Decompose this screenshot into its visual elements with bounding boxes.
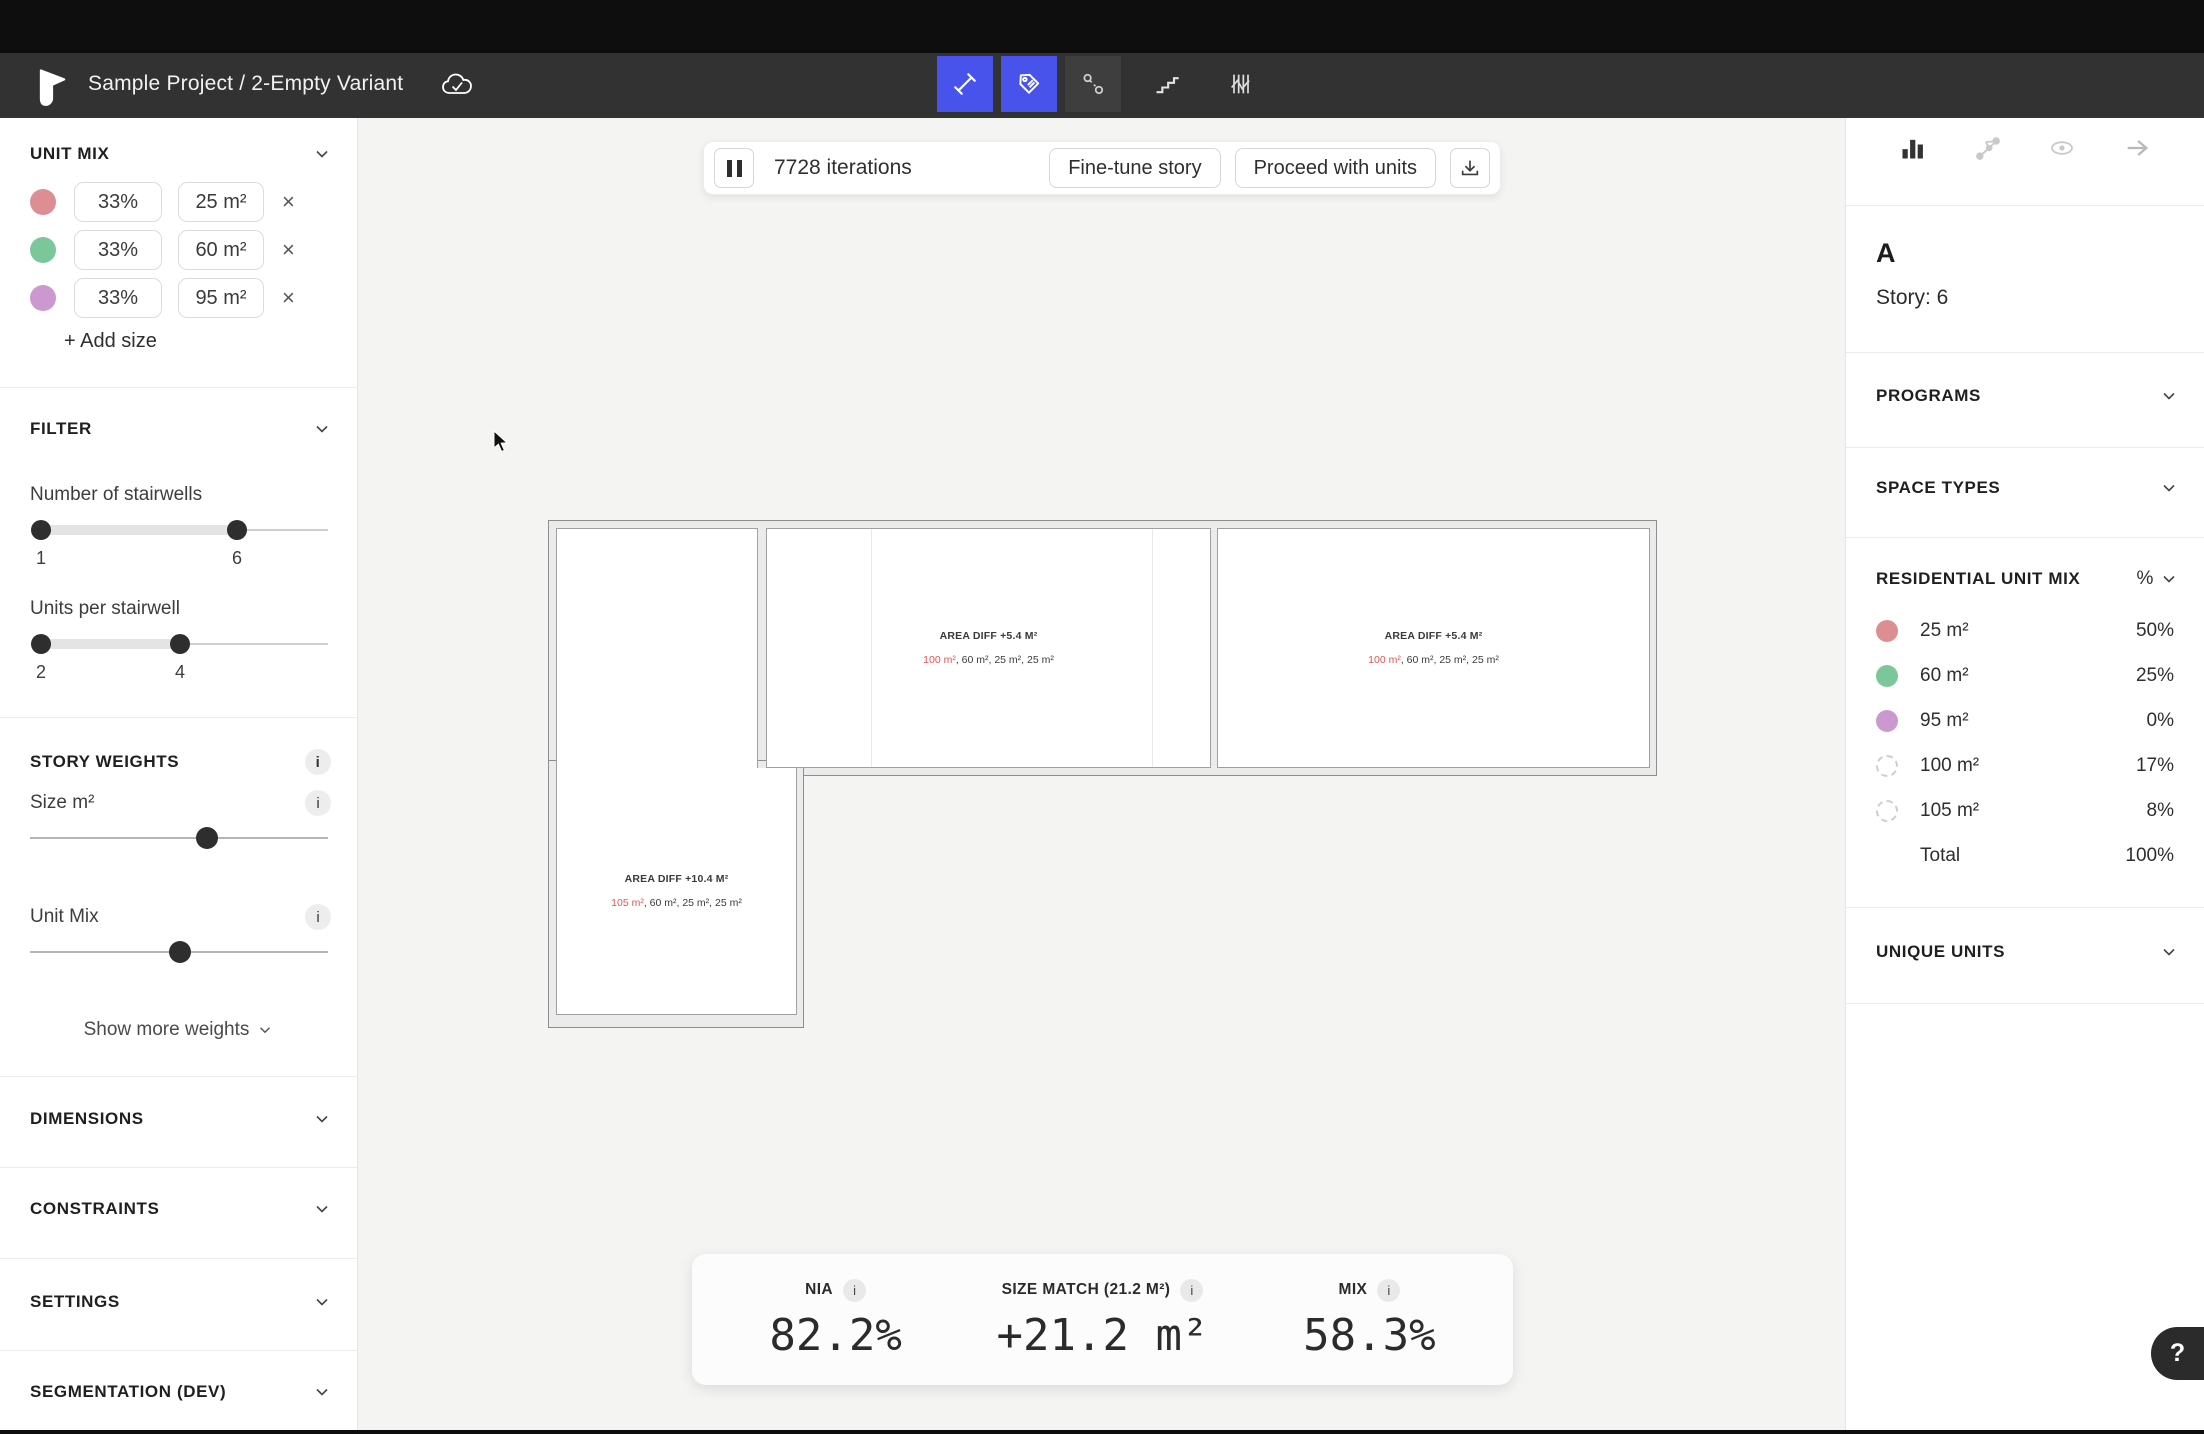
slider-handle-min[interactable] bbox=[31, 634, 51, 654]
divider bbox=[1846, 907, 2204, 908]
mix-pct-value: 25% bbox=[2136, 665, 2174, 687]
download-button[interactable] bbox=[1450, 148, 1490, 188]
divider bbox=[1846, 1003, 2204, 1004]
mouse-cursor bbox=[492, 430, 514, 454]
variant-name: A bbox=[1876, 238, 1896, 269]
slider-handle-min[interactable] bbox=[31, 520, 51, 540]
chevron-down-icon bbox=[2160, 570, 2178, 588]
constraints-header[interactable]: CONSTRAINTS bbox=[30, 1199, 331, 1219]
mix-row: 25 m² 50% bbox=[1876, 620, 2174, 642]
cloud-sync-icon[interactable] bbox=[440, 70, 478, 100]
divider bbox=[0, 1167, 357, 1168]
drawing-toolbar bbox=[937, 56, 1269, 112]
mix-total-row: Total 100% bbox=[1876, 845, 2174, 867]
unit-mix-row: 33% 95 m² × bbox=[30, 278, 295, 318]
area-diff-label: AREA DIFF +5.4 M² bbox=[940, 630, 1038, 642]
spacer bbox=[1876, 845, 1898, 867]
fine-tune-story-button[interactable]: Fine-tune story bbox=[1049, 148, 1220, 188]
left-panel: UNIT MIX 33% 25 m² × 33% 60 m² × 33% 95 … bbox=[0, 118, 358, 1430]
story-weights-header: STORY WEIGHTS i bbox=[30, 749, 331, 775]
mix-size-label: 100 m² bbox=[1920, 755, 1979, 777]
eye-icon[interactable] bbox=[2048, 134, 2076, 162]
slider-track[interactable] bbox=[30, 837, 328, 839]
mix-size-label: 25 m² bbox=[1920, 620, 1969, 642]
bar-chart-icon[interactable] bbox=[1899, 134, 1927, 162]
unit-size-input[interactable]: 95 m² bbox=[178, 278, 264, 318]
size-match-value: +21.2 m² bbox=[997, 1310, 1209, 1361]
slider-min-value: 1 bbox=[36, 548, 46, 569]
chevron-down-icon bbox=[313, 1383, 331, 1401]
tag-tool-button[interactable] bbox=[1001, 56, 1057, 112]
chevron-down-icon bbox=[313, 1110, 331, 1128]
mix-label: MIX bbox=[1339, 1281, 1368, 1299]
app-window: Sample Project / 2-Empty Variant bbox=[0, 0, 2204, 1434]
divider bbox=[0, 1350, 357, 1351]
slider-handle-max[interactable] bbox=[227, 520, 247, 540]
unit-division-line bbox=[871, 529, 872, 767]
chevron-down-icon bbox=[2160, 943, 2178, 961]
divider bbox=[0, 717, 357, 718]
unit-sizes: , 60 m², 25 m², 25 m² bbox=[644, 897, 742, 909]
divider bbox=[0, 1076, 357, 1077]
unit-pct-input[interactable]: 33% bbox=[74, 230, 162, 270]
floorplan-stairwell-block[interactable]: AREA DIFF +5.4 M² 100 m², 60 m², 25 m², … bbox=[766, 528, 1211, 768]
divider bbox=[1846, 537, 2204, 538]
help-button[interactable]: ? bbox=[2151, 1327, 2204, 1380]
info-icon[interactable]: i bbox=[305, 904, 331, 930]
variant-story: Story: 6 bbox=[1876, 286, 1948, 310]
programs-title: PROGRAMS bbox=[1876, 386, 1981, 406]
mix-row: 100 m² 17% bbox=[1876, 755, 2174, 777]
slider-track-active[interactable] bbox=[31, 639, 180, 649]
unit-mix-row: 33% 60 m² × bbox=[30, 230, 295, 270]
unit-mix-row: 33% 25 m² × bbox=[30, 182, 295, 222]
divider bbox=[1846, 447, 2204, 448]
show-more-weights-button[interactable]: Show more weights bbox=[0, 1019, 357, 1041]
size-weight-label: Size m² bbox=[30, 792, 94, 814]
mix-pct-value: 50% bbox=[2136, 620, 2174, 642]
area-diff-label: AREA DIFF +5.4 M² bbox=[1385, 630, 1483, 642]
size-match-label: SIZE MATCH (21.2 M²) bbox=[1002, 1281, 1171, 1299]
info-icon[interactable]: i bbox=[305, 790, 331, 816]
dimensions-title: DIMENSIONS bbox=[30, 1109, 144, 1129]
mix-pct-value: 17% bbox=[2136, 755, 2174, 777]
slider-handle-max[interactable] bbox=[170, 634, 190, 654]
space-types-header[interactable]: SPACE TYPES bbox=[1876, 478, 2178, 498]
programs-header[interactable]: PROGRAMS bbox=[1876, 386, 2178, 406]
dimensions-header[interactable]: DIMENSIONS bbox=[30, 1109, 331, 1129]
mix-pct-value: 8% bbox=[2147, 800, 2174, 822]
info-icon[interactable]: i bbox=[843, 1279, 866, 1302]
chevron-down-icon bbox=[313, 1293, 331, 1311]
unit-sizes: , 60 m², 25 m², 25 m² bbox=[1401, 654, 1499, 666]
unit-over-size: 105 m² bbox=[611, 897, 644, 909]
unit-over-size: 100 m² bbox=[923, 654, 956, 666]
unit-pct-input[interactable]: 33% bbox=[74, 278, 162, 318]
nia-value: 82.2% bbox=[769, 1310, 901, 1361]
unit-color-dot-dashed bbox=[1876, 800, 1898, 822]
slider-handle[interactable] bbox=[196, 827, 218, 849]
show-more-weights-label: Show more weights bbox=[84, 1019, 250, 1041]
hatch-tool-button[interactable] bbox=[1213, 56, 1269, 112]
divider bbox=[0, 1258, 357, 1259]
total-label: Total bbox=[1920, 845, 1960, 867]
unit-mix-weight-slider bbox=[30, 941, 328, 961]
mix-metric: MIX i 58.3% bbox=[1303, 1279, 1435, 1361]
finch-logo-icon[interactable] bbox=[32, 65, 72, 107]
add-size-button[interactable]: + Add size bbox=[64, 330, 157, 353]
area-diff-label: AREA DIFF +10.4 M² bbox=[625, 873, 729, 885]
chevron-down-icon bbox=[257, 1022, 273, 1038]
remove-unit-button[interactable]: × bbox=[282, 191, 295, 213]
iteration-toolbar: 7728 iterations Fine-tune story Proceed … bbox=[703, 141, 1501, 195]
stairwells-slider-label: Number of stairwells bbox=[30, 484, 202, 506]
mix-size-label: 60 m² bbox=[1920, 665, 1969, 687]
unit-list-label: 100 m², 60 m², 25 m², 25 m² bbox=[923, 654, 1054, 666]
filter-header[interactable]: FILTER bbox=[30, 419, 331, 439]
slider-track-active[interactable] bbox=[31, 525, 237, 535]
unit-mix-weight-label: Unit Mix bbox=[30, 906, 99, 928]
units-per-stairwell-slider-label: Units per stairwell bbox=[30, 598, 180, 620]
unit-sizes: , 60 m², 25 m², 25 m² bbox=[956, 654, 1054, 666]
slider-max-value: 6 bbox=[232, 548, 242, 569]
info-icon[interactable]: i bbox=[1377, 1279, 1400, 1302]
iteration-count: 7728 iterations bbox=[774, 156, 912, 180]
mix-row: 95 m² 0% bbox=[1876, 710, 2174, 732]
mix-pct-value: 0% bbox=[2147, 710, 2174, 732]
mix-row: 105 m² 8% bbox=[1876, 800, 2174, 822]
unit-list-label: 100 m², 60 m², 25 m², 25 m² bbox=[1368, 654, 1499, 666]
stairs-tool-button[interactable] bbox=[1139, 56, 1195, 112]
download-icon bbox=[1459, 157, 1481, 179]
segmentation-header[interactable]: SEGMENTATION (DEV) bbox=[30, 1382, 331, 1402]
chevron-down-icon bbox=[313, 1200, 331, 1218]
size-match-metric: SIZE MATCH (21.2 M²) i +21.2 m² bbox=[997, 1279, 1209, 1361]
unit-color-dot bbox=[30, 285, 56, 311]
mix-row: 60 m² 25% bbox=[1876, 665, 2174, 687]
percent-label: % bbox=[2137, 568, 2155, 590]
unit-division-line bbox=[1152, 529, 1153, 767]
stairwells-range-slider bbox=[30, 520, 328, 540]
proceed-with-units-button[interactable]: Proceed with units bbox=[1235, 148, 1436, 188]
chevron-down-icon[interactable] bbox=[313, 145, 331, 163]
metrics-bar: NIA i 82.2% SIZE MATCH (21.2 M²) i +21.2… bbox=[692, 1254, 1513, 1385]
unit-color-dot bbox=[1876, 620, 1898, 642]
space-types-title: SPACE TYPES bbox=[1876, 478, 2000, 498]
info-icon[interactable]: i bbox=[1180, 1279, 1203, 1302]
unit-pct-input[interactable]: 33% bbox=[74, 182, 162, 222]
unit-mix-weight-label-row: Unit Mix i bbox=[30, 904, 331, 930]
divider bbox=[0, 387, 357, 388]
chevron-down-icon bbox=[2160, 387, 2178, 405]
chevron-down-icon bbox=[2160, 479, 2178, 497]
unit-size-input[interactable]: 60 m² bbox=[178, 230, 264, 270]
divider bbox=[1846, 205, 2204, 206]
measure-tool-button[interactable] bbox=[937, 56, 993, 112]
mix-size-label: 95 m² bbox=[1920, 710, 1969, 732]
top-bar: Sample Project / 2-Empty Variant bbox=[0, 53, 2204, 118]
story-weights-title: STORY WEIGHTS bbox=[30, 752, 179, 772]
unique-units-header[interactable]: UNIQUE UNITS bbox=[1876, 942, 2178, 962]
unit-over-size: 100 m² bbox=[1368, 654, 1401, 666]
chevron-down-icon[interactable] bbox=[313, 420, 331, 438]
mix-value: 58.3% bbox=[1303, 1310, 1435, 1361]
unit-color-dot bbox=[30, 237, 56, 263]
unique-units-title: UNIQUE UNITS bbox=[1876, 942, 2005, 962]
right-panel: A Story: 6 PROGRAMS SPACE TYPES RESIDENT… bbox=[1845, 118, 2204, 1430]
unit-color-dot bbox=[1876, 665, 1898, 687]
total-value: 100% bbox=[2125, 845, 2174, 867]
arrow-right-icon[interactable] bbox=[2123, 134, 2151, 162]
size-weight-slider bbox=[30, 827, 328, 847]
floorplan-stairwell-block[interactable]: AREA DIFF +10.4 M² 105 m², 60 m², 25 m²,… bbox=[556, 768, 797, 1015]
pause-button[interactable] bbox=[714, 148, 754, 188]
residential-unit-mix-header[interactable]: RESIDENTIAL UNIT MIX % bbox=[1876, 568, 2178, 590]
settings-title: SETTINGS bbox=[30, 1292, 120, 1312]
unit-color-dot bbox=[30, 189, 56, 215]
analysis-icon-row bbox=[1846, 134, 2204, 162]
unit-list-label: 105 m², 60 m², 25 m², 25 m² bbox=[611, 897, 742, 909]
divider bbox=[1846, 352, 2204, 353]
unit-mix-title: UNIT MIX bbox=[30, 144, 109, 164]
residential-unit-mix-title: RESIDENTIAL UNIT MIX bbox=[1876, 569, 2080, 589]
nia-metric: NIA i 82.2% bbox=[769, 1279, 901, 1361]
constraints-title: CONSTRAINTS bbox=[30, 1199, 159, 1219]
unit-color-dot-dashed bbox=[1876, 755, 1898, 777]
floorplan-stairwell-block[interactable] bbox=[556, 528, 758, 776]
pause-icon bbox=[727, 160, 732, 177]
mix-size-label: 105 m² bbox=[1920, 800, 1979, 822]
remove-unit-button[interactable]: × bbox=[282, 287, 295, 309]
settings-header[interactable]: SETTINGS bbox=[30, 1292, 331, 1312]
remove-unit-button[interactable]: × bbox=[282, 239, 295, 261]
window-top-strip bbox=[0, 0, 2204, 53]
info-icon[interactable]: i bbox=[305, 749, 331, 775]
window-bottom-strip bbox=[0, 1430, 2204, 1434]
size-weight-label-row: Size m² i bbox=[30, 790, 331, 816]
unit-size-input[interactable]: 25 m² bbox=[178, 182, 264, 222]
segmentation-title: SEGMENTATION (DEV) bbox=[30, 1382, 226, 1402]
slider-track[interactable] bbox=[170, 643, 328, 645]
link-tool-button[interactable] bbox=[1065, 56, 1121, 112]
unit-display-toggle[interactable]: % bbox=[2137, 568, 2179, 590]
slider-max-value: 4 bbox=[175, 662, 185, 683]
slider-min-value: 2 bbox=[36, 662, 46, 683]
filter-title: FILTER bbox=[30, 419, 92, 439]
unit-color-dot bbox=[1876, 710, 1898, 732]
units-per-stairwell-range-slider bbox=[30, 634, 328, 654]
pause-icon bbox=[737, 160, 742, 177]
breadcrumb[interactable]: Sample Project / 2-Empty Variant bbox=[88, 72, 403, 96]
unit-mix-header[interactable]: UNIT MIX bbox=[30, 144, 331, 164]
network-graph-icon[interactable] bbox=[1974, 134, 2002, 162]
nia-label: NIA bbox=[805, 1281, 833, 1299]
slider-handle[interactable] bbox=[169, 941, 191, 963]
floorplan-stairwell-block[interactable]: AREA DIFF +5.4 M² 100 m², 60 m², 25 m², … bbox=[1217, 528, 1650, 768]
